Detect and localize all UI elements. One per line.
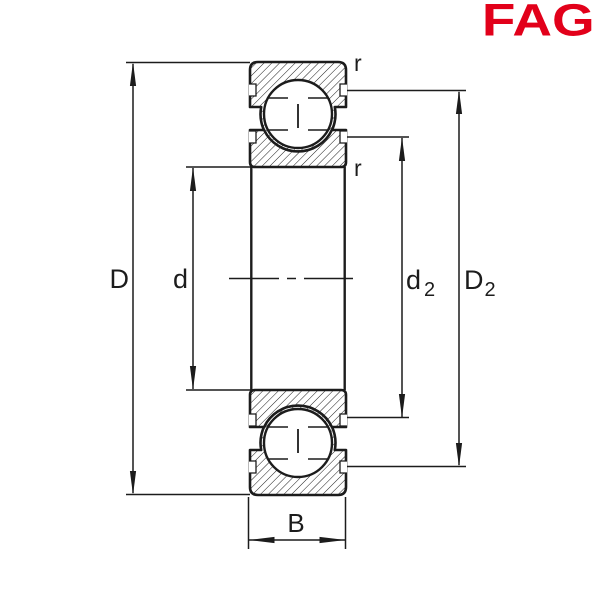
seal-notch	[249, 461, 256, 473]
dimension-width-B: B	[249, 497, 346, 549]
seal-notch	[249, 414, 256, 426]
seal-notch	[340, 84, 347, 96]
seal-notch	[340, 461, 347, 473]
dim-label-D2-subscript: 2	[485, 279, 496, 301]
dim-label-B: B	[287, 508, 304, 538]
dim-label-d2-subscript: 2	[424, 279, 435, 301]
radius-label-outer: r	[354, 50, 362, 76]
dim-label-d2: d2	[406, 265, 435, 301]
dim-label-D2: D2	[464, 265, 496, 301]
bearing-cross-section-drawing: D d d2 D2	[0, 0, 600, 600]
dim-label-d2-base: d	[406, 265, 421, 295]
seal-notch	[249, 84, 256, 96]
radius-label-inner: r	[354, 155, 362, 181]
seal-notch	[340, 414, 347, 426]
dim-label-D: D	[110, 264, 130, 294]
seal-notch	[249, 131, 256, 143]
bearing-drawing-page: FAG D d	[0, 0, 600, 600]
bearing-top-section	[249, 62, 347, 167]
dim-label-D2-base: D	[464, 265, 484, 295]
dim-label-d: d	[173, 264, 188, 294]
dimension-outer-shoulder-D2: D2	[347, 90, 496, 467]
bearing-bottom-section	[249, 390, 347, 495]
seal-notch	[340, 131, 347, 143]
